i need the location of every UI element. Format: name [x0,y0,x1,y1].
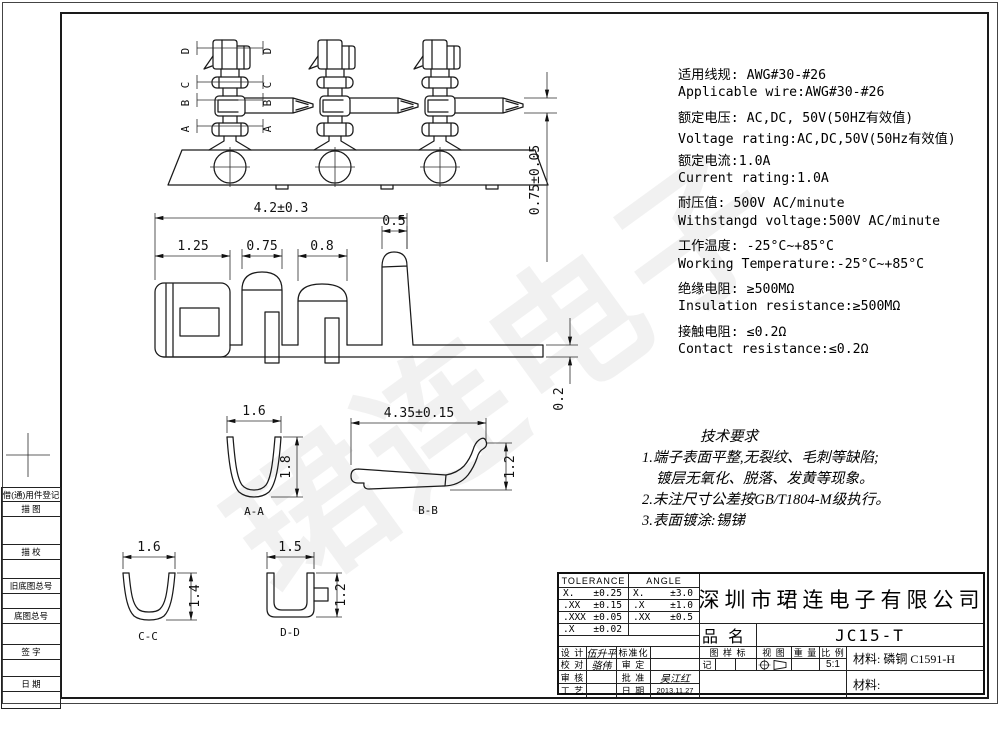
angle-header: ANGLE [629,574,700,588]
sign-label-standardize: 标准化 [617,647,651,659]
left-margin-label: 借(通)用件登记 [2,488,60,502]
spec-line: 适用线规: AWG#30-#26 [678,64,988,85]
tol-value: ±0.02 [593,624,622,635]
tolerance-blank-row [559,636,700,647]
sign-value-standardize [651,647,700,659]
sign-value-design: 伍升平 [587,647,617,659]
technical-requirements: 技术要求 1.端子表面平整,无裂纹、毛刺等缺陷; 镀层无氧化、脱落、发黄等现象。… [642,427,982,532]
left-margin-blank [2,624,60,645]
scale-label: 比 例 [820,647,847,659]
spec-line: Voltage rating:AC,DC,50V(50Hz有效值) [678,128,988,149]
weight-label: 重 量 [792,647,820,659]
tol-value: ±0.15 [593,600,622,611]
drawing-mark-cell [736,659,757,671]
company-name: 深圳市珺连电子有限公司 [700,574,983,624]
tolerance-row: .XXX±0.05 [559,612,629,624]
left-margin-blank [2,692,60,709]
third-angle-projection-icon [758,659,790,671]
angle-row: .XX±0.5 [629,612,700,624]
angle-value: ±1.0 [670,600,693,611]
tol-value: ±0.05 [593,612,622,623]
spec-line: 接触电阻: ≤0.2Ω [678,321,988,342]
angle-row-blank [629,624,700,636]
tolerance-row: X.±0.25 [559,588,629,600]
left-margin-label: 日 期 [2,677,60,692]
tech-line: 1.端子表面平整,无裂纹、毛刺等缺陷; [642,448,982,469]
scale-value: 5:1 [820,659,847,671]
spec-line: Applicable wire:AWG#30-#26 [678,85,988,106]
tech-line: 镀层无氧化、脱落、发黄等现象。 [656,469,982,490]
tolerance-row: .XX±0.15 [559,600,629,612]
tol-key: .X [563,624,574,635]
sign-value-check: 骆伟 [587,659,617,671]
left-margin-label: 描 校 [2,545,60,560]
angle-row: X.±3.0 [629,588,700,600]
engineering-drawing-sheet: { "watermark": { "text": "珺连电子" }, "spec… [0,0,1000,708]
left-margin-label: 签 字 [2,645,60,660]
left-margin-blank [2,594,60,609]
tol-key: .XX [563,600,580,611]
sign-label-approve: 批 准 [617,671,651,684]
angle-value: ±0.5 [670,612,693,623]
product-name-value: JC15-T [757,624,983,647]
spec-line: Insulation resistance:≥500MΩ [678,299,988,320]
sign-value-approve: 吴江红 [651,671,700,684]
spec-line: Current rating:1.0A [678,171,988,192]
sign-value-process [587,684,617,697]
title-block: TOLERANCE ANGLE X.±0.25 X.±3.0 .XX±0.15 … [557,572,985,695]
angle-key: .XX [633,612,650,623]
left-margin-column: 借(通)用件登记 描 图 描 校 旧底图总号 底图总号 签 字 日 期 [1,487,61,709]
material-top: 材料: 磷铜 C1591-H [847,647,983,671]
material-bottom: 材料: [847,671,983,697]
angle-row: .X±1.0 [629,600,700,612]
spec-line: 额定电压: AC,DC, 50V(50HZ有效值) [678,107,988,128]
sign-label-date: 日 期 [617,684,651,697]
material-value: 磷铜 C1591-H [883,650,955,667]
tol-value: ±0.25 [593,588,622,599]
tech-line: 2.未注尺寸公差按GB/T1804-M级执行。 [642,490,982,511]
spec-line: 工作温度: -25°C~+85°C [678,235,988,256]
drawing-mark-label2: 记 [700,659,716,671]
angle-value: ±3.0 [670,588,693,599]
sign-value-audit [587,671,617,684]
left-margin-blank [2,560,60,579]
drawing-mark-label: 图 样 标 [700,647,757,659]
mark-blank-area [700,671,847,697]
tolerance-header: TOLERANCE [559,574,629,588]
spec-line: Contact resistance:≤0.2Ω [678,342,988,363]
left-margin-blank [2,660,60,677]
material-label: 材料: [853,650,880,667]
left-margin-blank [2,517,60,545]
sign-label-check: 校 对 [559,659,587,671]
view-label: 视 图 [757,647,792,659]
left-margin-label: 底图总号 [2,609,60,624]
spec-line: Working Temperature:-25°C~+85°C [678,257,988,278]
material-label: 材料: [853,676,880,693]
projection-symbol-cell [757,659,792,671]
left-margin-label: 旧底图总号 [2,579,60,594]
drawing-mark-cell [716,659,736,671]
spec-line: 绝缘电阻: ≥500MΩ [678,278,988,299]
sign-label-audit: 审 核 [559,671,587,684]
specifications-block: 适用线规: AWG#30-#26 Applicable wire:AWG#30-… [678,64,988,363]
tol-key: .XXX [563,612,586,623]
sign-value-date: 2013.11.27 [651,684,700,697]
product-name-label: 品名 [700,624,757,647]
spec-line: 耐压值: 500V AC/minute [678,192,988,213]
left-margin-label: 描 图 [2,502,60,517]
angle-key: .X [633,600,644,611]
spec-line: 额定电流:1.0A [678,150,988,171]
sign-label-design: 设 计 [559,647,587,659]
tolerance-row: .X±0.02 [559,624,629,636]
spec-line: Withstangd voltage:500V AC/minute [678,214,988,235]
tech-line: 3.表面镀涂:锡锑 [642,511,982,532]
sign-value-review [651,659,700,671]
tech-requirements-title: 技术要求 [700,427,982,448]
sign-label-review: 审 定 [617,659,651,671]
angle-key: X. [633,588,644,599]
weight-value [792,659,820,671]
tol-key: X. [563,588,574,599]
sign-label-process: 工 艺 [559,684,587,697]
